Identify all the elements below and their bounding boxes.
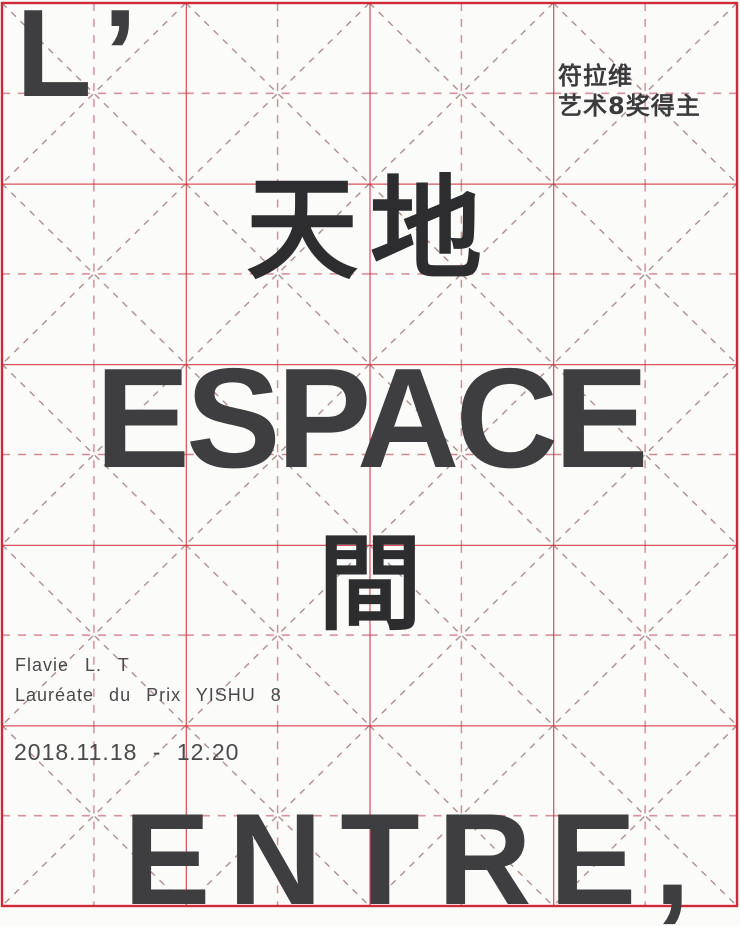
title-chinese-tiandi: 天地 xyxy=(0,174,740,286)
award-note-line-2: 艺术8奖得主 xyxy=(558,91,701,121)
title-entre: ENTRE, xyxy=(124,794,709,924)
award-note: 符拉维 艺术8奖得主 xyxy=(558,61,701,121)
title-espace: ESPACE xyxy=(0,348,740,490)
title-chinese-jian: 間 xyxy=(0,532,740,636)
award-note-line-1: 符拉维 xyxy=(558,61,701,91)
title-letter-l-apostrophe: L’ xyxy=(16,0,155,116)
artist-name: Flavie L. T xyxy=(15,656,130,674)
artist-laureate-line: Lauréate du Prix YISHU 8 xyxy=(15,686,282,704)
exhibition-poster: L’ 符拉维 艺术8奖得主 天地 ESPACE 間 Flavie L. T La… xyxy=(0,0,740,926)
exhibition-dates: 2018.11.18 - 12.20 xyxy=(14,741,239,764)
